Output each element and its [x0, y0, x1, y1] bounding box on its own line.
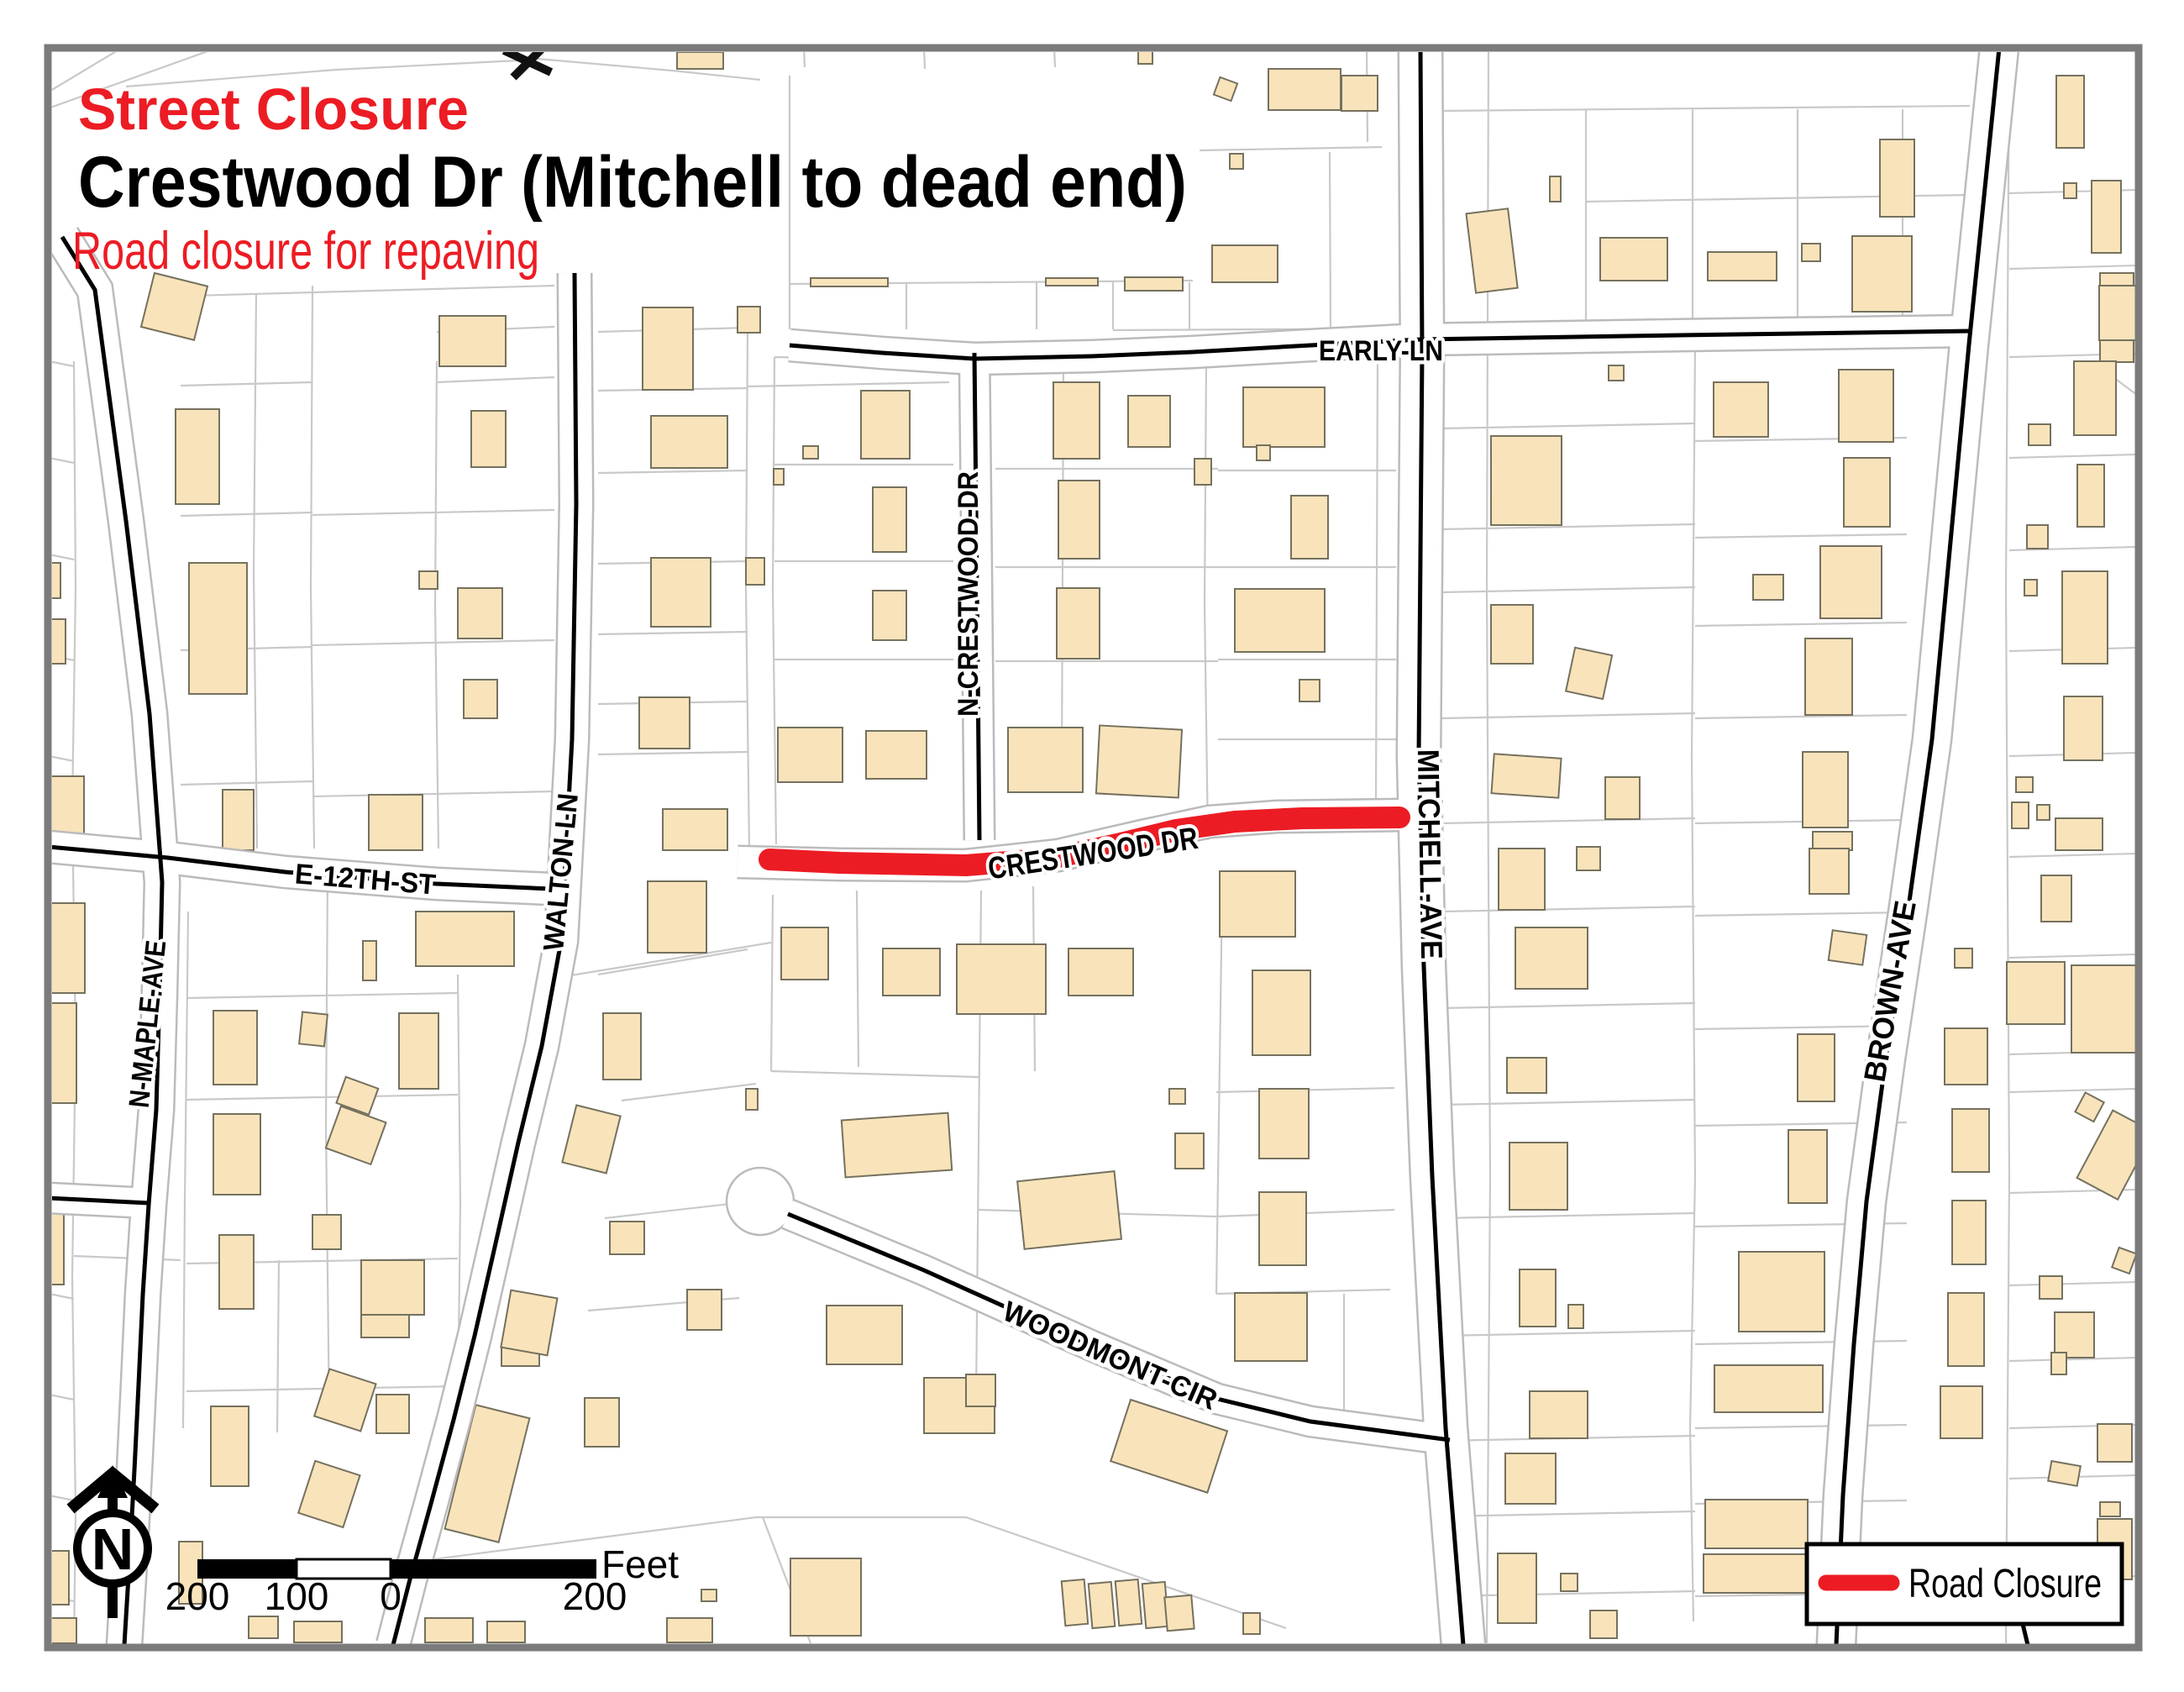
svg-text:EARLY-LN: EARLY-LN: [1319, 335, 1443, 367]
svg-text:N-CRESTWOOD-DR: N-CRESTWOOD-DR: [953, 471, 984, 717]
svg-text:200: 200: [165, 1574, 230, 1618]
svg-text:Feet: Feet: [601, 1542, 679, 1586]
svg-text:N: N: [92, 1516, 134, 1582]
svg-text:Crestwood Dr (Mitchell to dead: Crestwood Dr (Mitchell to dead end): [78, 142, 1187, 223]
svg-text:Street Closure: Street Closure: [78, 76, 469, 142]
svg-text:Road closure for repaving: Road closure for repaving: [72, 222, 539, 281]
svg-text:100: 100: [265, 1574, 329, 1618]
svg-text:0: 0: [380, 1574, 402, 1618]
svg-text:Road Closure: Road Closure: [1908, 1562, 2102, 1606]
svg-text:MITCHELL-AVE: MITCHELL-AVE: [1411, 749, 1449, 959]
